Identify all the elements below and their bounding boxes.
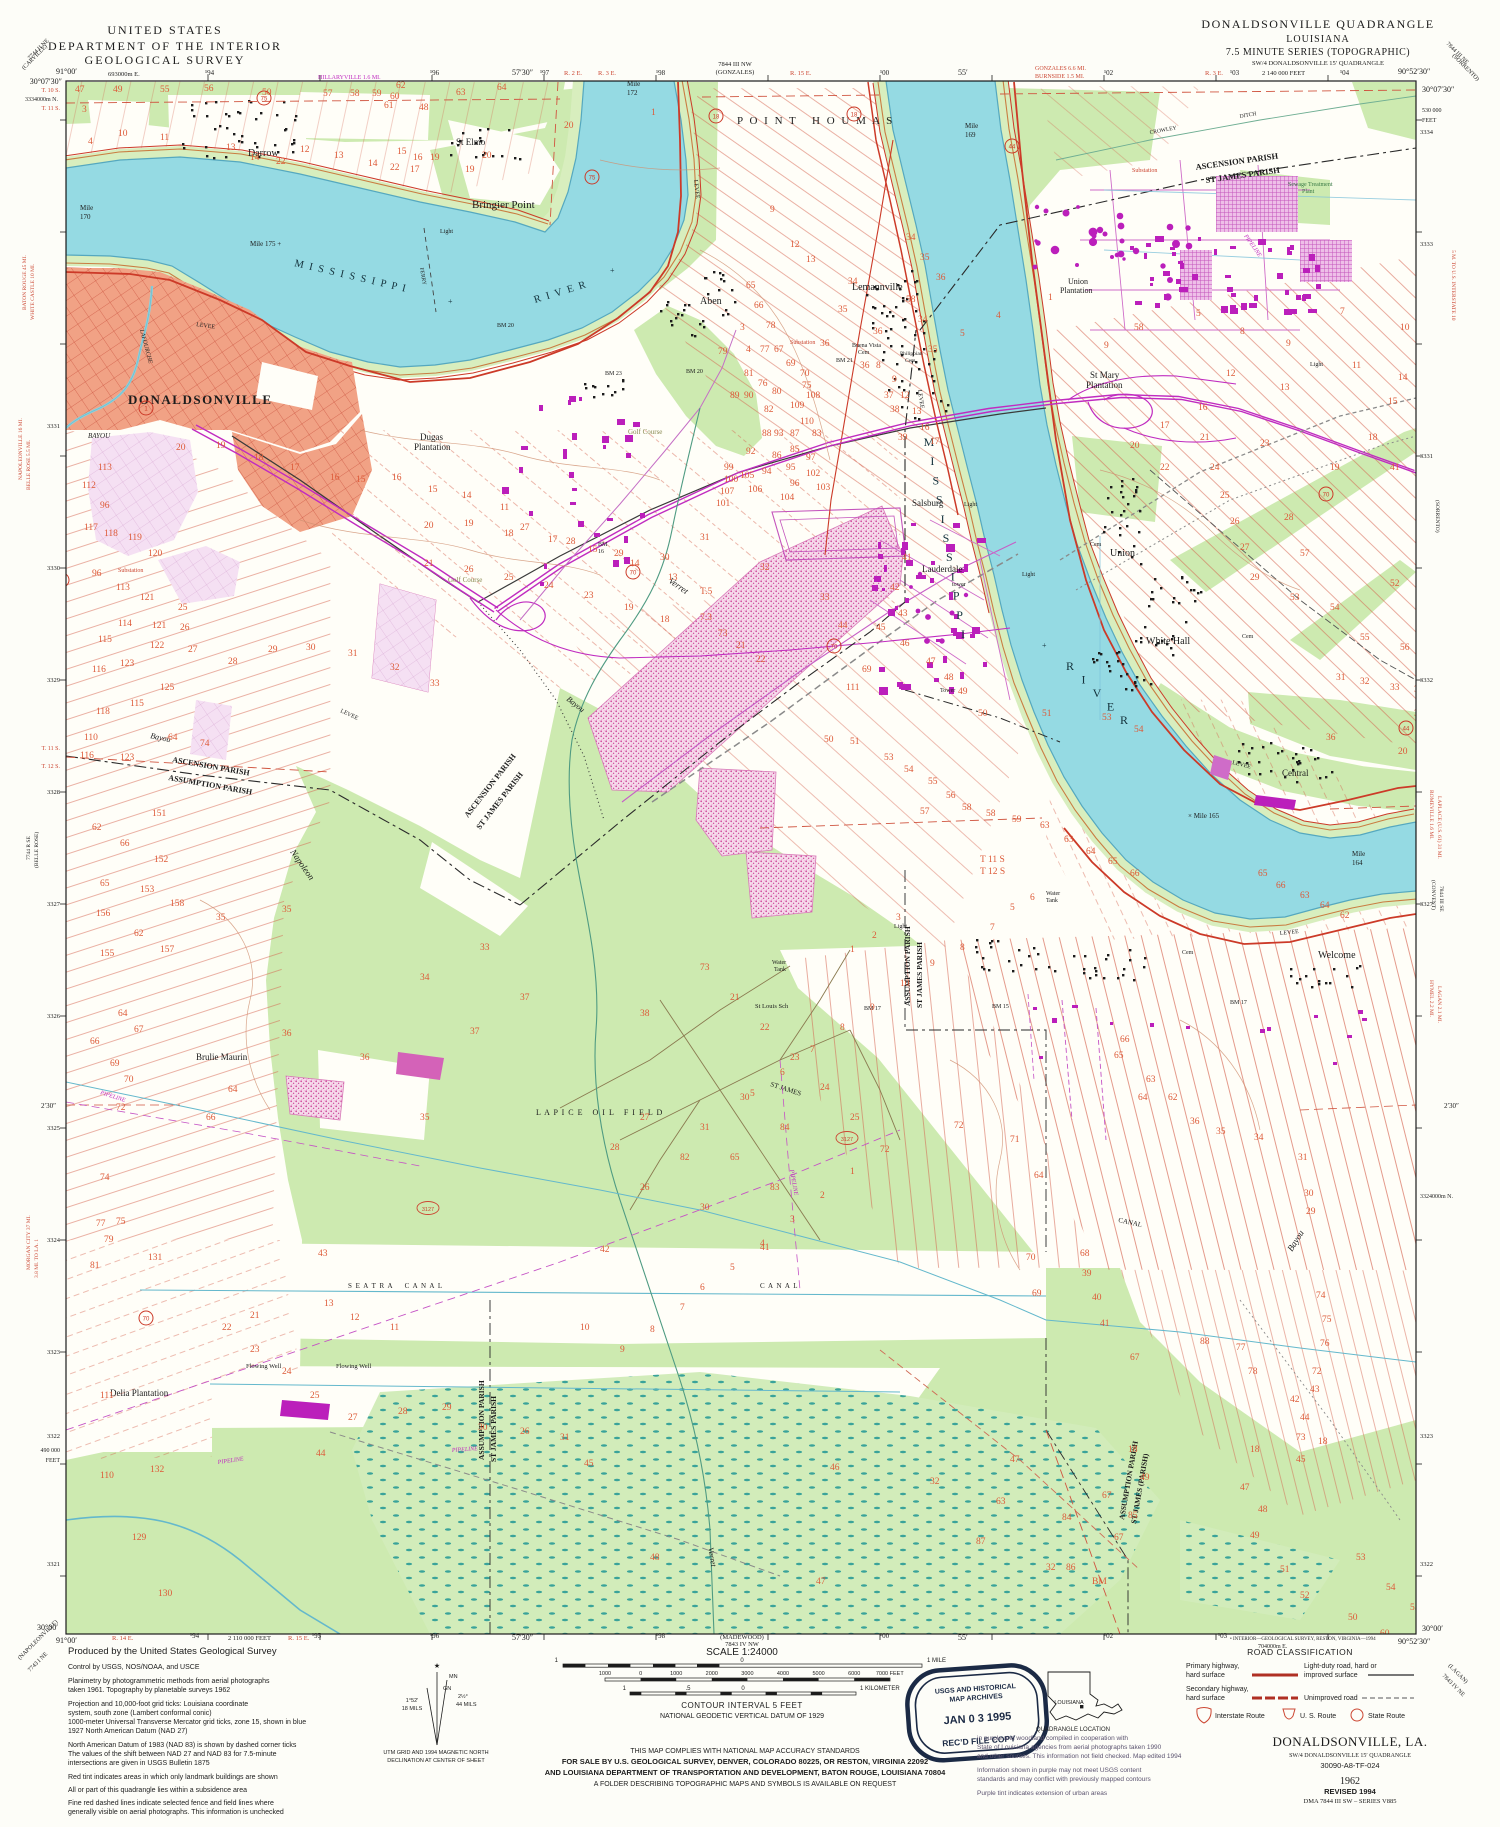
svg-text:19: 19 [465, 165, 475, 175]
svg-text:ST JAMES PARISH: ST JAMES PARISH [915, 942, 924, 1008]
svg-text:Bringier Point: Bringier Point [472, 199, 535, 211]
svg-text:UNITED STATES: UNITED STATES [107, 23, 222, 37]
svg-text:Plantation: Plantation [1060, 286, 1092, 295]
svg-text:Substation: Substation [118, 568, 143, 574]
svg-text:P: P [956, 608, 963, 622]
svg-text:3325: 3325 [47, 1125, 60, 1132]
svg-text:ROAD CLASSIFICATION: ROAD CLASSIFICATION [1247, 1647, 1353, 1657]
svg-text:36: 36 [360, 1053, 370, 1063]
svg-text:63: 63 [456, 88, 466, 98]
svg-text:21: 21 [1200, 433, 1210, 443]
svg-text:3322: 3322 [47, 1433, 60, 1440]
svg-text:97: 97 [806, 453, 816, 463]
svg-text:64: 64 [497, 83, 507, 93]
svg-text:113: 113 [98, 463, 112, 473]
svg-text:T. 11 S.: T. 11 S. [42, 746, 61, 752]
svg-text:¹98: ¹98 [656, 69, 666, 77]
svg-text:46: 46 [900, 639, 910, 649]
svg-text:58: 58 [962, 803, 972, 813]
svg-text:29: 29 [442, 1403, 452, 1413]
svg-text:5: 5 [960, 329, 965, 339]
svg-text:5 M. TO U.S. INTERSTATE 10: 5 M. TO U.S. INTERSTATE 10 [1450, 250, 1456, 321]
svg-text:18: 18 [660, 615, 670, 625]
svg-text:5: 5 [1196, 309, 1201, 319]
svg-text:6: 6 [780, 1068, 785, 1078]
svg-text:THIS MAP COMPLIES WITH NATIONA: THIS MAP COMPLIES WITH NATIONAL MAP ACCU… [630, 1748, 860, 1755]
svg-text:Unimproved road: Unimproved road [1304, 1695, 1358, 1702]
svg-text:21: 21 [730, 993, 740, 1003]
svg-text:BELLE ROSE 5.5 MI.: BELLE ROSE 5.5 MI. [26, 439, 32, 490]
svg-text:3127: 3127 [422, 1207, 434, 1213]
svg-text:NAPOLEONVILLE 16 MI.: NAPOLEONVILLE 16 MI. [18, 418, 24, 480]
svg-text:Central: Central [1282, 768, 1309, 778]
svg-text:32: 32 [930, 1477, 940, 1487]
svg-text:FEET: FEET [46, 1458, 61, 1464]
svg-text:119: 119 [128, 533, 142, 543]
svg-text:Tank: Tank [1046, 898, 1058, 904]
svg-text:¹95: ¹95 [312, 1632, 322, 1640]
svg-text:R: R [1120, 713, 1128, 727]
svg-text:86: 86 [1066, 1563, 1076, 1573]
svg-text:15: 15 [1388, 397, 1398, 407]
svg-text:29: 29 [1250, 573, 1260, 583]
svg-text:15: 15 [428, 485, 438, 495]
svg-text:Plantation: Plantation [414, 442, 451, 452]
svg-text:LOUISIANA: LOUISIANA [1054, 1700, 1084, 1706]
svg-text:81: 81 [90, 1261, 100, 1271]
svg-text:(GONZALES): (GONZALES) [716, 69, 755, 76]
svg-text:improved surface: improved surface [1304, 1672, 1358, 1679]
svg-text:7744 R SE: 7744 R SE [26, 836, 32, 860]
svg-text:34: 34 [918, 315, 928, 325]
svg-text:64: 64 [1320, 901, 1330, 911]
svg-text:70: 70 [1026, 1253, 1036, 1263]
svg-text:5: 5 [730, 1263, 735, 1273]
svg-text:153: 153 [140, 885, 155, 895]
svg-text:93: 93 [774, 429, 784, 439]
svg-text:17: 17 [1160, 421, 1170, 431]
svg-text:19: 19 [464, 519, 474, 529]
svg-text:3: 3 [896, 913, 901, 923]
svg-text:13: 13 [806, 255, 816, 265]
svg-text:I: I [930, 454, 934, 468]
svg-text:72: 72 [880, 1145, 890, 1155]
svg-text:25: 25 [310, 1391, 320, 1401]
svg-text:22: 22 [276, 157, 286, 167]
svg-text:57′30″: 57′30″ [512, 68, 533, 77]
svg-text:R. 15 E.: R. 15 E. [790, 70, 812, 77]
svg-text:BM: BM [1092, 1577, 1107, 1587]
svg-text:(MADEWOOD): (MADEWOOD) [720, 1634, 764, 1641]
svg-text:30°07′30″: 30°07′30″ [1422, 85, 1454, 94]
svg-text:.5: .5 [685, 1686, 691, 1692]
svg-text:114: 114 [118, 619, 132, 629]
svg-text:★: ★ [434, 1662, 440, 1670]
svg-text:21: 21 [250, 1311, 260, 1321]
svg-text:89: 89 [730, 391, 740, 401]
svg-text:+: + [448, 297, 453, 306]
svg-text:85: 85 [790, 445, 800, 455]
svg-text:66: 66 [754, 301, 764, 311]
svg-text:96: 96 [92, 569, 102, 579]
svg-text:standards and may conflict wit: standards and may conflict with previous… [977, 1776, 1152, 1783]
svg-text:75: 75 [802, 381, 812, 391]
svg-text:42: 42 [1290, 1395, 1300, 1405]
svg-text:24: 24 [1210, 463, 1220, 473]
svg-text:Purple tint indicates extensio: Purple tint indicates extension of urban… [977, 1790, 1108, 1797]
svg-text:Plant: Plant [1302, 189, 1315, 195]
svg-text:151: 151 [152, 809, 167, 819]
svg-text:6: 6 [1030, 893, 1035, 903]
svg-text:R: R [1066, 659, 1074, 673]
svg-text:T.5: T.5 [700, 587, 712, 597]
svg-text:90°52′30″: 90°52′30″ [1398, 1637, 1430, 1646]
svg-text:Aben: Aben [700, 296, 722, 307]
svg-text:Mile: Mile [965, 122, 978, 130]
svg-text:10: 10 [900, 979, 910, 989]
svg-text:30: 30 [660, 553, 670, 563]
svg-text:66: 66 [1130, 869, 1140, 879]
svg-text:83: 83 [770, 1183, 780, 1193]
svg-text:30: 30 [1304, 1189, 1314, 1199]
svg-text:8: 8 [1240, 327, 1245, 337]
svg-text:T 12 S: T 12 S [980, 867, 1005, 877]
svg-text:18 MILS: 18 MILS [402, 1706, 423, 1712]
svg-text:32: 32 [1046, 1563, 1056, 1573]
svg-text:24: 24 [282, 1367, 292, 1377]
svg-text:16: 16 [920, 423, 930, 433]
svg-text:HYMEL 2.2 MI.: HYMEL 2.2 MI. [1428, 980, 1434, 1018]
svg-text:Plantation: Plantation [1086, 380, 1123, 390]
svg-text:T. 10 S.: T. 10 S. [41, 88, 60, 94]
svg-text:46: 46 [830, 1463, 840, 1473]
svg-text:54: 54 [1330, 603, 1340, 613]
svg-text:44: 44 [1300, 1413, 1310, 1423]
svg-text:35: 35 [420, 1113, 430, 1123]
svg-text:27: 27 [520, 523, 530, 533]
svg-text:13: 13 [226, 143, 236, 153]
svg-text:31: 31 [1298, 1153, 1308, 1163]
svg-text:35: 35 [1216, 1127, 1226, 1137]
svg-text:8: 8 [840, 1023, 845, 1033]
svg-text:67: 67 [134, 1025, 144, 1035]
svg-text:Light: Light [1022, 572, 1035, 578]
svg-text:¹98: ¹98 [656, 1632, 666, 1640]
svg-text:66: 66 [1120, 1035, 1130, 1045]
svg-text:111: 111 [846, 683, 860, 693]
svg-text:8: 8 [650, 1325, 655, 1335]
svg-text:19: 19 [1330, 463, 1340, 473]
svg-text:16: 16 [598, 549, 604, 555]
svg-text:14: 14 [250, 153, 260, 163]
svg-text:55: 55 [160, 85, 170, 95]
svg-text:¹03: ¹03 [1230, 69, 1240, 77]
svg-text:Produced by the United States: Produced by the United States Geological… [68, 1646, 277, 1657]
svg-text:Secondary highway,: Secondary highway, [1186, 1686, 1249, 1693]
svg-text:A FOLDER DESCRIBING TOPOGRAPHI: A FOLDER DESCRIBING TOPOGRAPHIC MAPS AND… [594, 1781, 897, 1788]
svg-text:3327: 3327 [47, 901, 61, 908]
svg-text:53: 53 [884, 753, 894, 763]
svg-text:63: 63 [1146, 1075, 1156, 1085]
svg-text:29: 29 [268, 645, 278, 655]
svg-text:47: 47 [926, 657, 936, 667]
svg-text:3127: 3127 [841, 1137, 853, 1143]
svg-text:41: 41 [902, 553, 912, 563]
svg-text:123: 123 [120, 753, 135, 763]
svg-text:74: 74 [200, 739, 210, 749]
svg-text:SW/4 DONALDSONVILLE 15′ QUADRA: SW/4 DONALDSONVILLE 15′ QUADRANGLE [1289, 1753, 1411, 1759]
svg-text:GN: GN [443, 1686, 451, 1692]
svg-text:113: 113 [116, 583, 130, 593]
svg-text:57: 57 [1300, 549, 1310, 559]
svg-text:+: + [1042, 641, 1047, 650]
svg-text:Projection and 10,000-foot gri: Projection and 10,000-foot grid ticks: L… [68, 1701, 248, 1708]
svg-text:4: 4 [88, 137, 93, 147]
svg-text:23: 23 [790, 1053, 800, 1063]
svg-text:BM 17: BM 17 [1230, 1000, 1247, 1006]
svg-text:164: 164 [1352, 859, 1363, 867]
svg-text:53: 53 [1290, 593, 1300, 603]
svg-text:22: 22 [760, 1023, 770, 1033]
svg-text:69: 69 [1032, 1289, 1042, 1299]
svg-text:State Route: State Route [1368, 1713, 1405, 1720]
svg-text:54: 54 [1134, 725, 1144, 735]
svg-text:18: 18 [851, 113, 858, 119]
svg-text:50: 50 [978, 709, 988, 719]
svg-text:Flowing Well: Flowing Well [246, 1363, 281, 1370]
svg-text:28: 28 [398, 1407, 408, 1417]
svg-text:CONTOUR INTERVAL 5 FEET: CONTOUR INTERVAL 5 FEET [681, 1701, 802, 1710]
svg-text:490 000: 490 000 [41, 1448, 61, 1454]
svg-text:DECLINATION AT CENTER OF SHEET: DECLINATION AT CENTER OF SHEET [387, 1758, 485, 1764]
svg-text:ASSUMPTION PARISH: ASSUMPTION PARISH [477, 1380, 486, 1460]
svg-text:ST JAMES PARISH: ST JAMES PARISH [489, 1396, 498, 1462]
svg-text:15: 15 [356, 475, 366, 485]
svg-text:R. 14 E.: R. 14 E. [112, 1635, 134, 1642]
svg-text:18: 18 [1128, 1445, 1138, 1455]
svg-text:72: 72 [954, 1121, 964, 1131]
svg-text:21: 21 [424, 559, 434, 569]
svg-text:43: 43 [1310, 1385, 1320, 1395]
svg-text:22: 22 [390, 163, 400, 173]
svg-text:28: 28 [610, 1143, 620, 1153]
svg-text:99: 99 [724, 463, 734, 473]
svg-text:693000m E.: 693000m E. [108, 71, 140, 78]
svg-text:4: 4 [760, 1239, 765, 1249]
svg-text:36: 36 [1190, 1117, 1200, 1127]
svg-text:96: 96 [100, 501, 110, 511]
svg-text:NATIONAL GEODETIC VERTICAL DAT: NATIONAL GEODETIC VERTICAL DATUM OF 1929 [660, 1713, 824, 1720]
svg-text:18: 18 [1318, 1437, 1328, 1447]
svg-text:56: 56 [1400, 643, 1410, 653]
svg-text:Cem: Cem [905, 358, 916, 364]
svg-text:19: 19 [624, 603, 634, 613]
svg-text:14: 14 [630, 559, 640, 569]
svg-text:T. 12 S.: T. 12 S. [41, 764, 60, 770]
svg-text:WHITE CASTLE 10 MI.: WHITE CASTLE 10 MI. [30, 263, 36, 320]
svg-text:16: 16 [330, 473, 340, 483]
svg-text:4000: 4000 [777, 1671, 789, 1677]
svg-text:St Louis Sch: St Louis Sch [755, 1003, 789, 1010]
svg-text:C A N A L: C A N A L [760, 1282, 799, 1290]
svg-text:1: 1 [1048, 293, 1053, 303]
svg-text:52: 52 [1300, 1591, 1310, 1601]
svg-text:1 MILE: 1 MILE [927, 1658, 946, 1664]
svg-text:48: 48 [944, 673, 954, 683]
svg-text:90°52′30″: 90°52′30″ [1398, 67, 1430, 76]
svg-text:64: 64 [118, 1009, 128, 1019]
svg-text:122: 122 [150, 641, 165, 651]
svg-text:116: 116 [80, 751, 94, 761]
svg-text:22: 22 [1160, 463, 1170, 473]
svg-text:44: 44 [1403, 727, 1410, 733]
svg-text:57: 57 [323, 89, 333, 99]
svg-text:I: I [961, 627, 965, 641]
svg-text:26: 26 [520, 1427, 530, 1437]
svg-text:Union: Union [1068, 277, 1088, 286]
svg-text:REVISED 1994: REVISED 1994 [1324, 1787, 1377, 1796]
svg-text:62: 62 [1340, 911, 1350, 921]
svg-text:19: 19 [430, 153, 440, 163]
svg-text:38: 38 [640, 1009, 650, 1019]
svg-text:2′30″: 2′30″ [1444, 1102, 1459, 1110]
svg-text:56: 56 [946, 791, 956, 801]
svg-text:55′: 55′ [958, 1633, 968, 1642]
svg-text:Cem: Cem [1182, 950, 1194, 956]
svg-text:26: 26 [1230, 517, 1240, 527]
svg-text:47: 47 [1010, 1455, 1020, 1465]
svg-text:3332: 3332 [1420, 677, 1433, 684]
svg-text:3324000m N.: 3324000m N. [1420, 1194, 1454, 1200]
svg-text:LAPLACE (U.S. 61) 31 MI.: LAPLACE (U.S. 61) 31 MI. [1436, 796, 1443, 859]
svg-text:S: S [943, 531, 950, 545]
svg-text:7000 FEET: 7000 FEET [876, 1671, 904, 1677]
svg-text:28: 28 [1284, 513, 1294, 523]
svg-text:Light: Light [1310, 362, 1323, 368]
svg-text:109: 109 [790, 401, 805, 411]
svg-text:100: 100 [724, 475, 739, 485]
svg-text:51: 51 [1280, 1565, 1290, 1575]
svg-text:GEOLOGICAL SURVEY: GEOLOGICAL SURVEY [85, 53, 246, 67]
svg-text:ROMEVILLE 1.6 MI.: ROMEVILLE 1.6 MI. [1428, 790, 1434, 840]
svg-text:(SORRENTO): (SORRENTO) [1434, 500, 1441, 533]
svg-text:35: 35 [920, 253, 930, 263]
svg-text:S: S [932, 473, 939, 487]
svg-text:P O I N T H O U M A S: P O I N T H O U M A S [737, 115, 894, 127]
svg-text:3329: 3329 [47, 677, 60, 684]
svg-text:Golf Course: Golf Course [448, 576, 482, 584]
svg-text:55′: 55′ [958, 68, 968, 77]
svg-text:12: 12 [790, 240, 800, 250]
svg-text:ASSUMPTION PARISH: ASSUMPTION PARISH [903, 926, 912, 1006]
svg-text:State of Louisiana agencies fr: State of Louisiana agencies from aerial … [977, 1744, 1162, 1751]
svg-text:87: 87 [976, 1537, 986, 1547]
svg-text:55: 55 [928, 777, 938, 787]
svg-text:104: 104 [780, 493, 795, 503]
svg-text:Cem: Cem [1090, 542, 1102, 548]
svg-text:Mile 175 +: Mile 175 + [250, 240, 281, 248]
svg-text:14: 14 [1398, 373, 1408, 383]
svg-text:107: 107 [720, 487, 735, 497]
svg-text:¹00: ¹00 [880, 69, 890, 77]
svg-text:3324: 3324 [47, 1237, 61, 1244]
svg-text:SW/4 DONALDSONVILLE 15′ QUADRA: SW/4 DONALDSONVILLE 15′ QUADRANGLE [1252, 60, 1384, 67]
svg-text:152: 152 [154, 855, 169, 865]
svg-text:62: 62 [396, 81, 406, 91]
svg-text:BM 21: BM 21 [836, 358, 853, 364]
svg-text:49: 49 [1250, 1531, 1260, 1541]
svg-text:DONALDSONVILLE QUADRANGLE: DONALDSONVILLE QUADRANGLE [1201, 17, 1434, 31]
svg-text:91°00′: 91°00′ [56, 1636, 77, 1645]
svg-text:¹94: ¹94 [190, 1632, 200, 1640]
svg-text:1°52′: 1°52′ [406, 1698, 418, 1704]
svg-text:¹97: ¹97 [540, 69, 550, 77]
svg-text:BM 20: BM 20 [686, 369, 703, 375]
svg-text:27: 27 [1240, 543, 1250, 553]
svg-text:BM: BM [598, 542, 608, 548]
svg-text:16: 16 [1198, 403, 1208, 413]
svg-text:FOR SALE BY U.S. GEOLOGICAL SU: FOR SALE BY U.S. GEOLOGICAL SURVEY, DENV… [562, 1757, 928, 1766]
svg-text:64: 64 [168, 733, 178, 743]
svg-text:31: 31 [700, 1123, 710, 1133]
svg-text:13: 13 [668, 573, 678, 583]
svg-text:E: E [1107, 700, 1114, 714]
svg-text:BURNSIDE 1.5 MI.: BURNSIDE 1.5 MI. [1035, 74, 1085, 80]
svg-text:× Mile 165: × Mile 165 [1188, 812, 1220, 820]
svg-text:2000: 2000 [706, 1671, 718, 1677]
svg-text:10: 10 [580, 1323, 590, 1333]
svg-text:112: 112 [82, 481, 96, 491]
svg-text:Interstate Route: Interstate Route [1215, 1713, 1265, 1720]
svg-text:28: 28 [228, 657, 238, 667]
svg-text:77: 77 [760, 345, 770, 355]
svg-text:Tank: Tank [774, 967, 786, 973]
svg-text:V: V [1093, 686, 1102, 700]
svg-text:taken 1961. Topography by pla: taken 1961. Topography by planetable sur… [68, 1687, 230, 1694]
svg-text:Mile: Mile [1352, 850, 1365, 858]
svg-text:system, south zone (Lambert co: system, south zone (Lambert conformal co… [68, 1710, 212, 1717]
svg-text:70: 70 [630, 571, 637, 577]
svg-text:68: 68 [1080, 1249, 1090, 1259]
svg-text:DEPARTMENT OF THE INTERIOR: DEPARTMENT OF THE INTERIOR [48, 39, 282, 53]
svg-text:20: 20 [424, 521, 434, 531]
svg-text:42: 42 [600, 1245, 610, 1255]
svg-text:170: 170 [80, 213, 91, 221]
svg-text:R. 2 E.: R. 2 E. [564, 70, 582, 77]
svg-text:67: 67 [1130, 1353, 1140, 1363]
svg-text:• INTERIOR—GEOLOGICAL SURVEY,: • INTERIOR—GEOLOGICAL SURVEY, RESTON, VI… [1230, 1637, 1376, 1642]
svg-text:11: 11 [390, 1323, 399, 1333]
svg-text:48: 48 [419, 103, 429, 113]
svg-text:70: 70 [800, 369, 810, 379]
svg-text:Lemannville: Lemannville [852, 282, 903, 293]
svg-text:intersections are given in USG: intersections are given in USGS Bulletin… [68, 1760, 210, 1767]
svg-text:118: 118 [104, 529, 118, 539]
svg-text:1: 1 [850, 945, 855, 955]
svg-text:22: 22 [756, 655, 766, 665]
svg-text:10: 10 [1400, 323, 1410, 333]
svg-text:DONALDSONVILLE, LA.: DONALDSONVILLE, LA. [1272, 1734, 1427, 1749]
svg-text:3: 3 [790, 1215, 795, 1225]
svg-text:S: S [946, 550, 953, 564]
svg-text:105: 105 [740, 471, 755, 481]
svg-text:25: 25 [178, 603, 188, 613]
svg-text:72: 72 [1312, 1367, 1322, 1377]
svg-text:¹96: ¹96 [430, 69, 440, 77]
svg-text:81: 81 [744, 369, 754, 379]
svg-text:29: 29 [614, 549, 624, 559]
svg-text:11: 11 [1352, 361, 1361, 371]
